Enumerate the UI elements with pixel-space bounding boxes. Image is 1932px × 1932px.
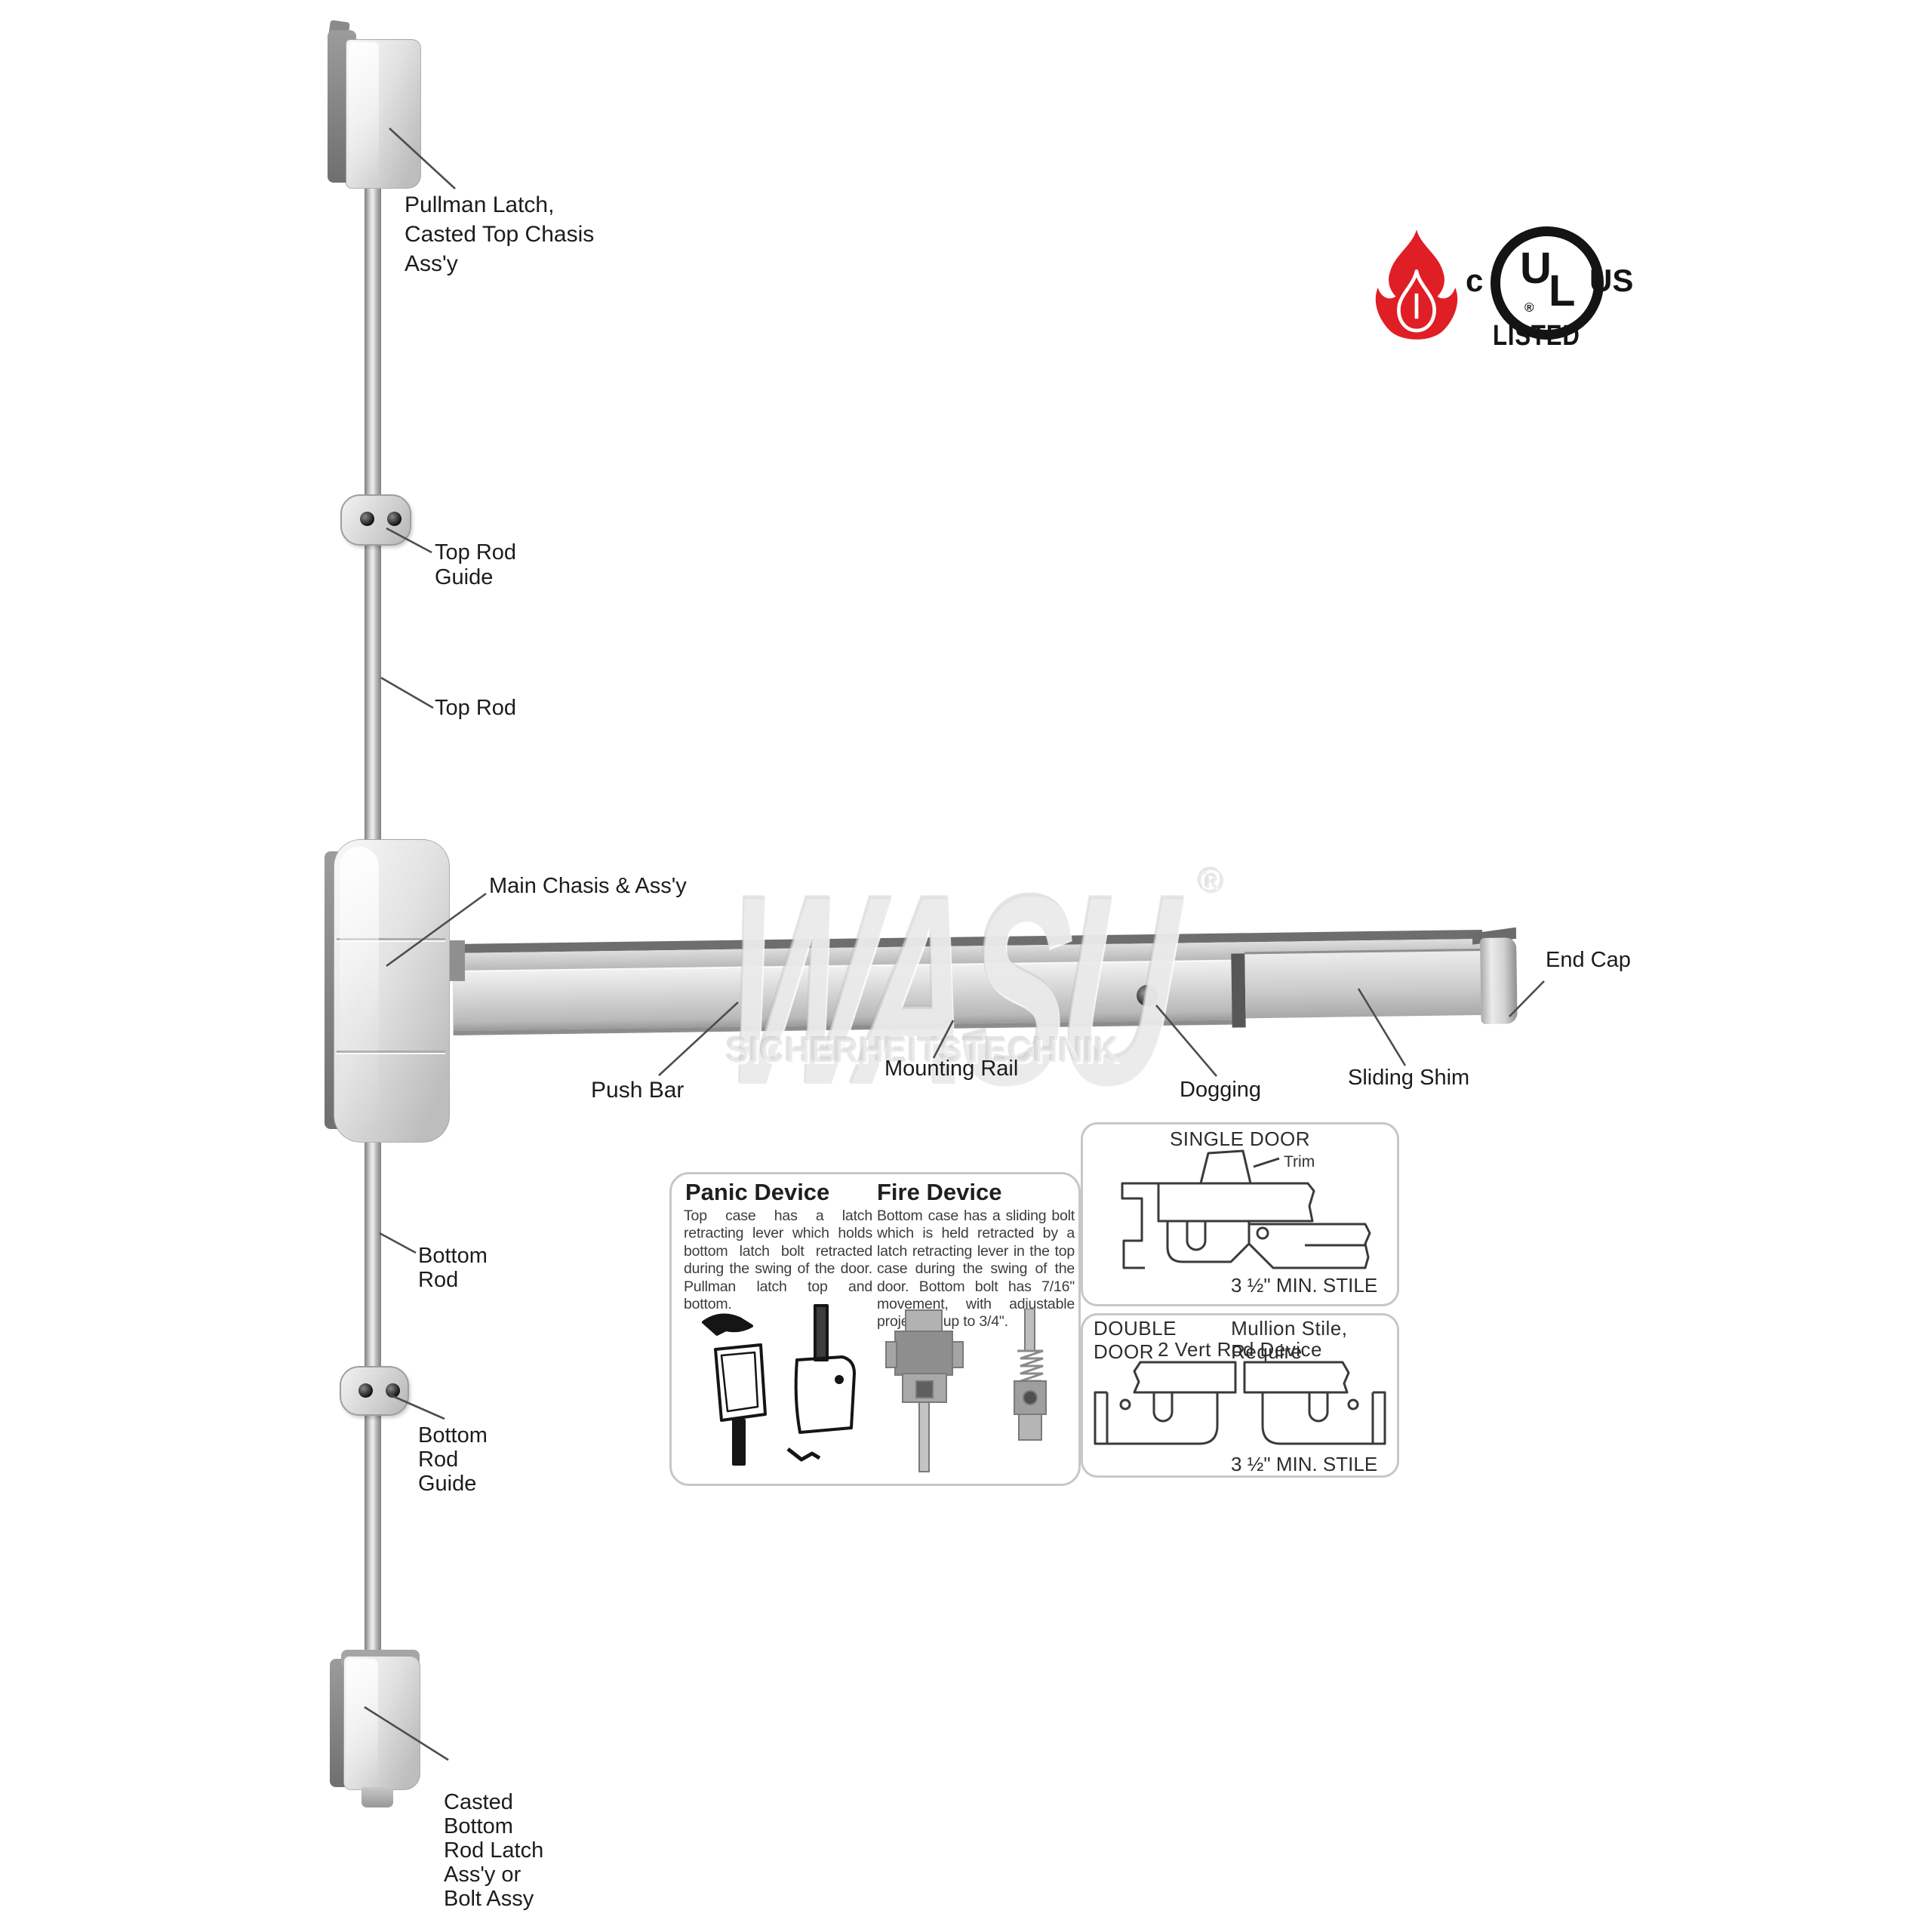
label-sliding-shim: Sliding Shim (1348, 1066, 1469, 1091)
exit-device-diagram: WASU ® SICHERHEITSTECHNIK c U L ® US LIS… (0, 0, 1932, 1932)
double-door-box: DOUBLE DOOR Mullion Stile, Require 2 Ver… (1081, 1313, 1399, 1478)
label-bottom-rod-guide: BottomRodGuide (418, 1423, 488, 1496)
label-dogging: Dogging (1180, 1078, 1261, 1103)
fire-latch-illustration (877, 1309, 1075, 1475)
label-top-rod: Top Rod (435, 696, 516, 721)
fire-device-title: Fire Device (877, 1179, 1001, 1206)
label-pullman-latch: Pullman Latch,Casted Top ChasisAss'y (405, 190, 594, 278)
label-mounting-rail: Mounting Rail (884, 1057, 1018, 1081)
svg-text:Trim: Trim (1284, 1153, 1315, 1171)
panic-device-title: Panic Device (685, 1179, 829, 1206)
double-door-stile-note: 3 ½" MIN. STILE (1231, 1453, 1377, 1476)
single-door-stile-note: 3 ½" MIN. STILE (1231, 1274, 1377, 1297)
double-door-subtitle2: 2 Vert Rod Device (1083, 1338, 1397, 1361)
leader-lines (0, 0, 1932, 1932)
label-main-chasis: Main Chasis & Ass'y (489, 874, 687, 899)
single-door-diagram: Trim (1089, 1147, 1391, 1274)
label-bottom-latch: CastedBottomRod LatchAss'y orBolt Assy (444, 1790, 543, 1911)
label-end-cap: End Cap (1546, 948, 1631, 973)
panic-device-text: Top case has a latch retracting lever wh… (684, 1207, 872, 1313)
label-top-rod-guide: Top RodGuide (435, 540, 516, 590)
double-door-diagram (1094, 1359, 1386, 1448)
panic-fire-info-box: Panic Device Top case has a latch retrac… (669, 1172, 1081, 1486)
panic-latch-sketch (682, 1301, 871, 1475)
single-door-box: SINGLE DOOR Trim 3 ½" MIN. STILE (1081, 1122, 1399, 1306)
label-bottom-rod: BottomRod (418, 1244, 488, 1292)
label-push-bar: Push Bar (591, 1076, 684, 1105)
